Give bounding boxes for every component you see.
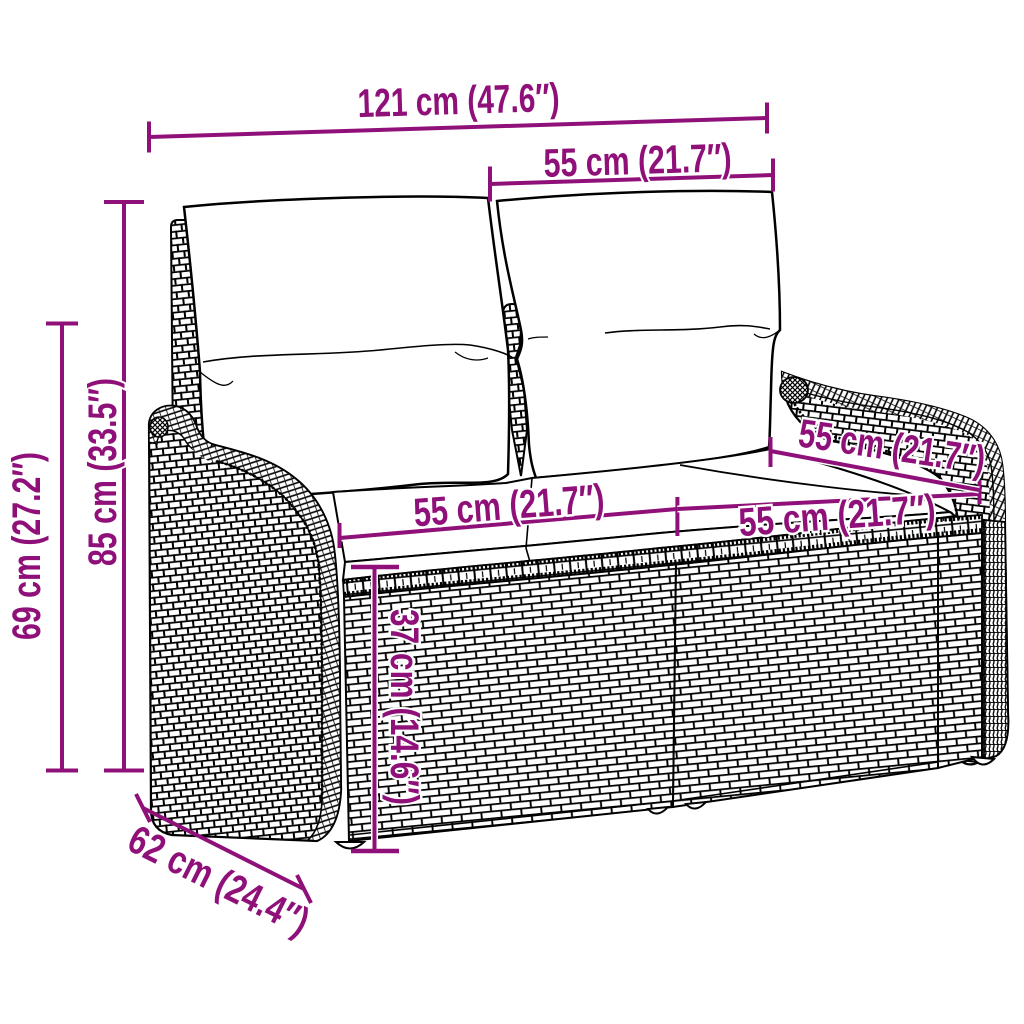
svg-text:85 cm (33.5″): 85 cm (33.5″) <box>81 378 125 566</box>
svg-text:55 cm (21.7″): 55 cm (21.7″) <box>543 136 732 186</box>
svg-text:121 cm (47.6″): 121 cm (47.6″) <box>357 76 560 126</box>
svg-text:69 cm (27.2″): 69 cm (27.2″) <box>5 452 49 640</box>
svg-text:37 cm (14.6″): 37 cm (14.6″) <box>382 609 426 805</box>
